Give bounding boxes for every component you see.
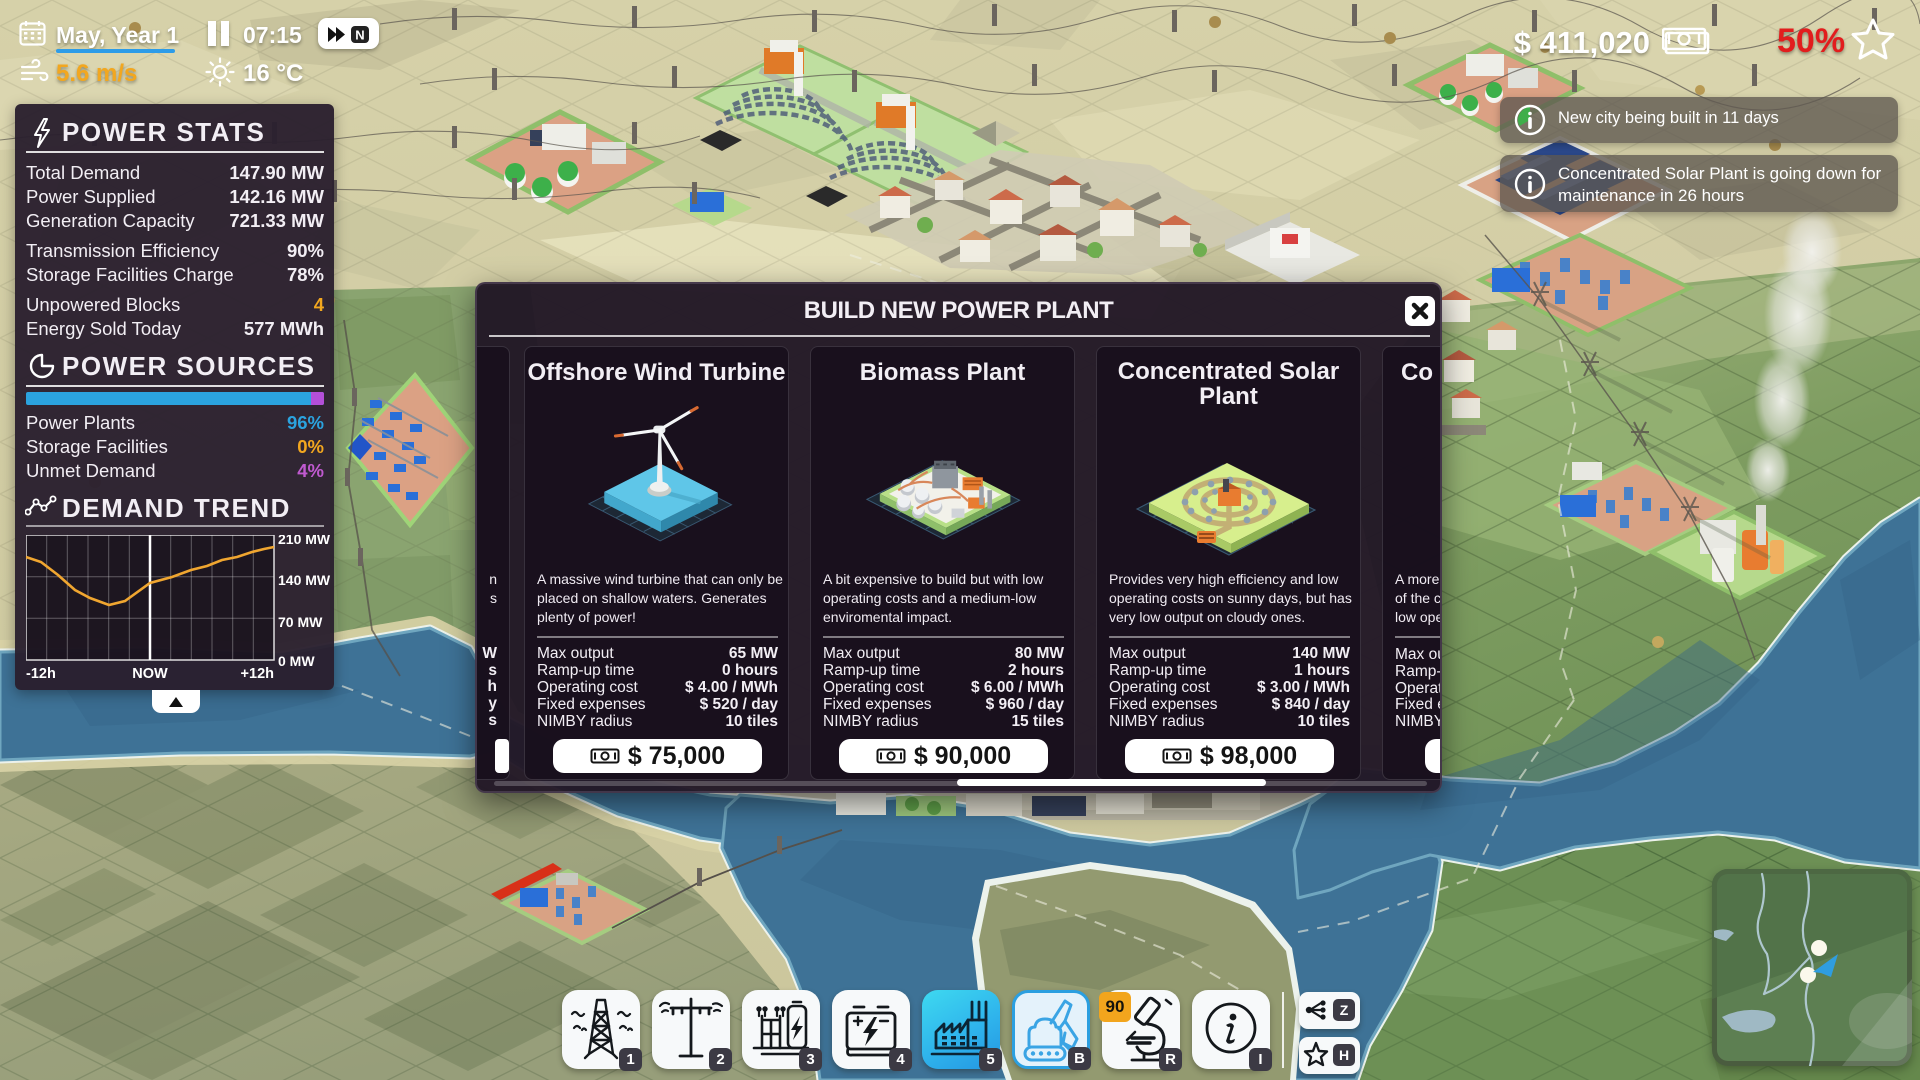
svg-text:140 MW: 140 MW [278,572,331,588]
svg-text:-12h: -12h [26,666,56,681]
svg-text:+12h: +12h [241,666,274,681]
svg-text:210 MW: 210 MW [278,535,331,547]
svg-text:0 MW: 0 MW [278,653,315,669]
svg-text:N: N [355,28,364,43]
svg-text:70 MW: 70 MW [278,614,323,630]
svg-text:NOW: NOW [132,666,168,681]
